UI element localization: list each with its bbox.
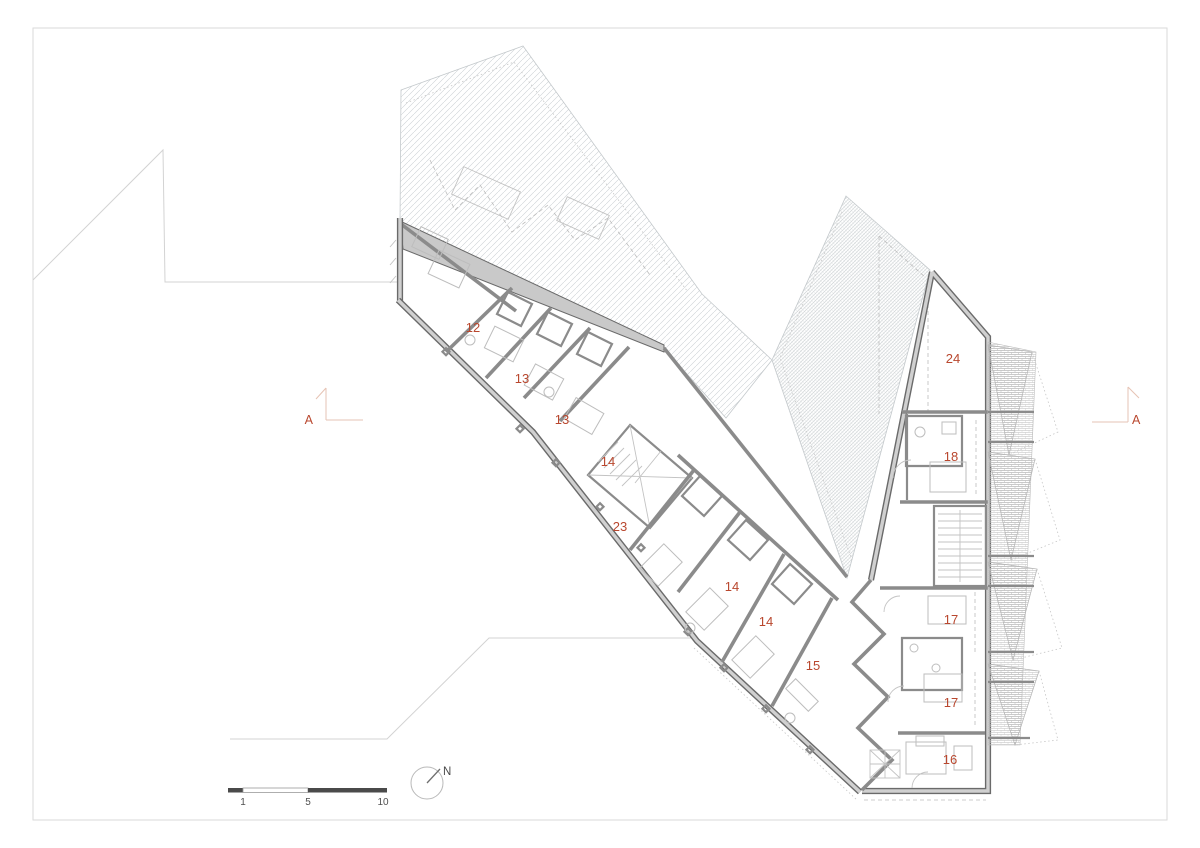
scale-bar: 1 5 10 bbox=[228, 788, 389, 808]
scale-segment-dark-2 bbox=[308, 788, 387, 793]
scale-label-5: 5 bbox=[305, 797, 311, 808]
room-label-24: 24 bbox=[946, 351, 960, 366]
room-label-17: 17 bbox=[944, 695, 958, 710]
scale-segment-light bbox=[243, 788, 308, 793]
room-label-15: 15 bbox=[806, 658, 820, 673]
north-arrow: N bbox=[411, 766, 451, 799]
room-label-13: 13 bbox=[555, 412, 569, 427]
bathroom-pods-lower bbox=[682, 476, 812, 604]
brick-hatch-east bbox=[988, 342, 1062, 745]
door-arcs bbox=[884, 460, 928, 788]
west-wall-hatch-ticks bbox=[390, 240, 396, 283]
room-label-13: 13 bbox=[515, 371, 529, 386]
scale-segment-dark-1 bbox=[228, 788, 243, 793]
room-label-18: 18 bbox=[944, 449, 958, 464]
room-label-16: 16 bbox=[943, 752, 957, 767]
furniture-right-wing bbox=[906, 422, 972, 774]
closet-dash-lines bbox=[975, 420, 976, 726]
room-label-14: 14 bbox=[759, 614, 773, 629]
fan-stair bbox=[870, 750, 900, 778]
scale-label-10: 10 bbox=[377, 797, 389, 808]
section-label-left: A bbox=[305, 413, 314, 427]
north-needle bbox=[427, 769, 440, 783]
roof-plane-northwest bbox=[400, 46, 772, 418]
stair-core-right-wing bbox=[934, 506, 986, 586]
stair-core-left-wing bbox=[588, 425, 692, 528]
scale-label-1: 1 bbox=[240, 797, 246, 808]
section-marker-right: A bbox=[1092, 387, 1141, 427]
north-label: N bbox=[443, 766, 451, 778]
section-marker-left: A bbox=[305, 388, 363, 427]
floor-plan-drawing: 12131314231414152418171716 A A 1 5 10 N bbox=[0, 0, 1200, 848]
floor-plan-sheet: 12131314231414152418171716 A A 1 5 10 N bbox=[0, 0, 1200, 848]
room-label-17: 17 bbox=[944, 612, 958, 627]
room-label-12: 12 bbox=[466, 320, 480, 335]
room-label-14: 14 bbox=[725, 579, 739, 594]
room-label-23: 23 bbox=[613, 519, 627, 534]
section-label-right: A bbox=[1132, 413, 1141, 427]
room-label-14: 14 bbox=[601, 454, 615, 469]
junction-zigzag-wall bbox=[852, 580, 892, 790]
